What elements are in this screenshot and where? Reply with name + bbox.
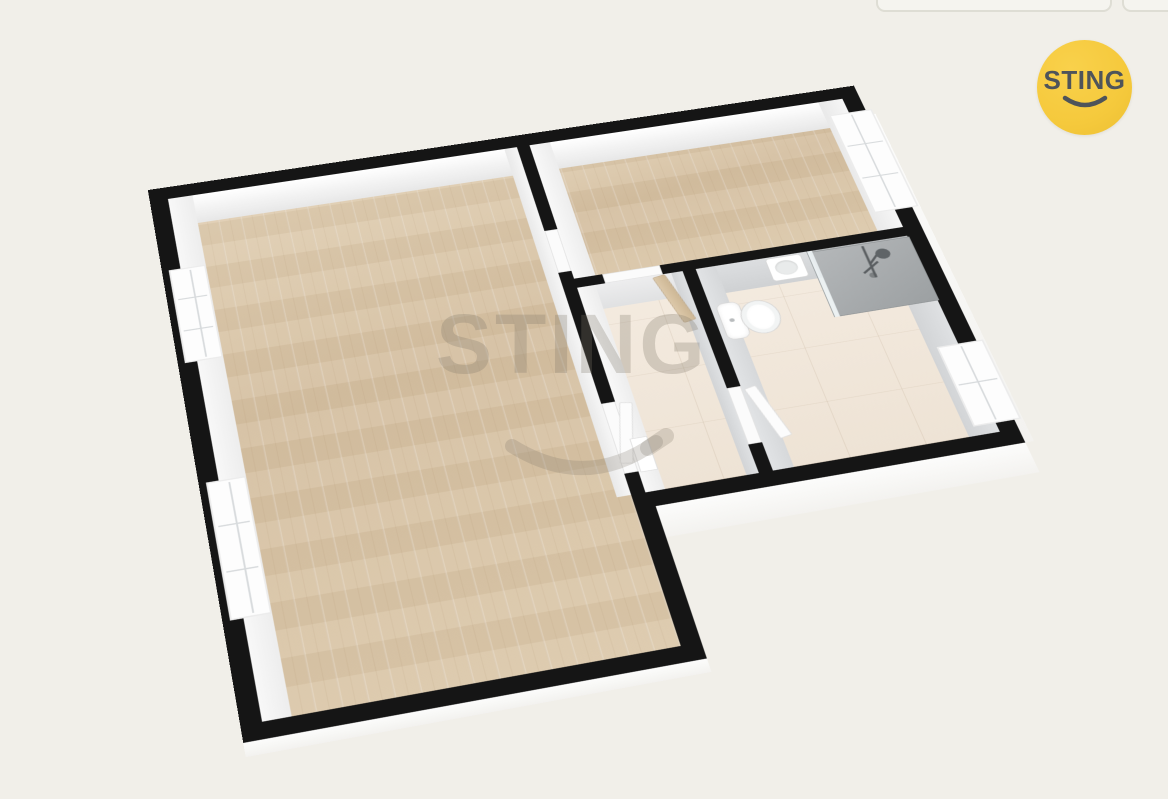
floorplan-3d-scene bbox=[0, 0, 1168, 799]
sting-logo-badge: STING bbox=[1037, 40, 1132, 135]
sting-logo-smile-icon bbox=[1059, 94, 1111, 112]
sting-logo-text: STING bbox=[1037, 67, 1132, 93]
living-hallway-door-leaf bbox=[619, 402, 633, 463]
window-mullion bbox=[228, 482, 254, 613]
toilet-flush-button bbox=[729, 318, 735, 322]
floorplan-render: STING STING bbox=[0, 0, 1168, 799]
window-mullion bbox=[226, 566, 258, 573]
window-mullion bbox=[178, 295, 207, 301]
floorplan bbox=[148, 86, 1095, 743]
window-mullion bbox=[189, 270, 207, 357]
window-mullion bbox=[184, 326, 214, 332]
sink-basin bbox=[773, 259, 801, 276]
window-mullion bbox=[218, 521, 250, 528]
